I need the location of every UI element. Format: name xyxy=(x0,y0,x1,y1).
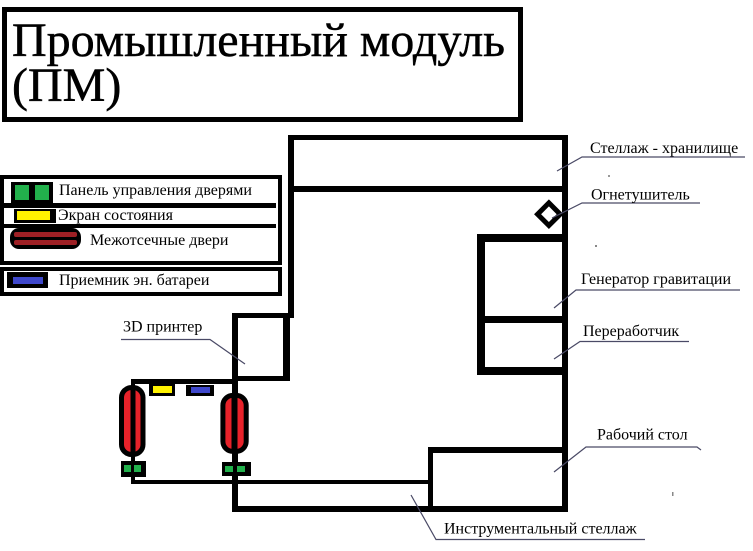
svg-text:Генератор гравитации: Генератор гравитации xyxy=(581,271,731,288)
svg-text:Огнетушитель: Огнетушитель xyxy=(591,187,690,204)
svg-text:Переработчик: Переработчик xyxy=(583,323,679,340)
svg-text:Рабочий стол: Рабочий стол xyxy=(597,427,688,444)
svg-text:Инструментальный стеллаж: Инструментальный стеллаж xyxy=(444,521,638,538)
svg-text:3D принтер: 3D принтер xyxy=(123,319,202,336)
svg-text:Стеллаж - хранилище: Стеллаж - хранилище xyxy=(590,140,738,157)
